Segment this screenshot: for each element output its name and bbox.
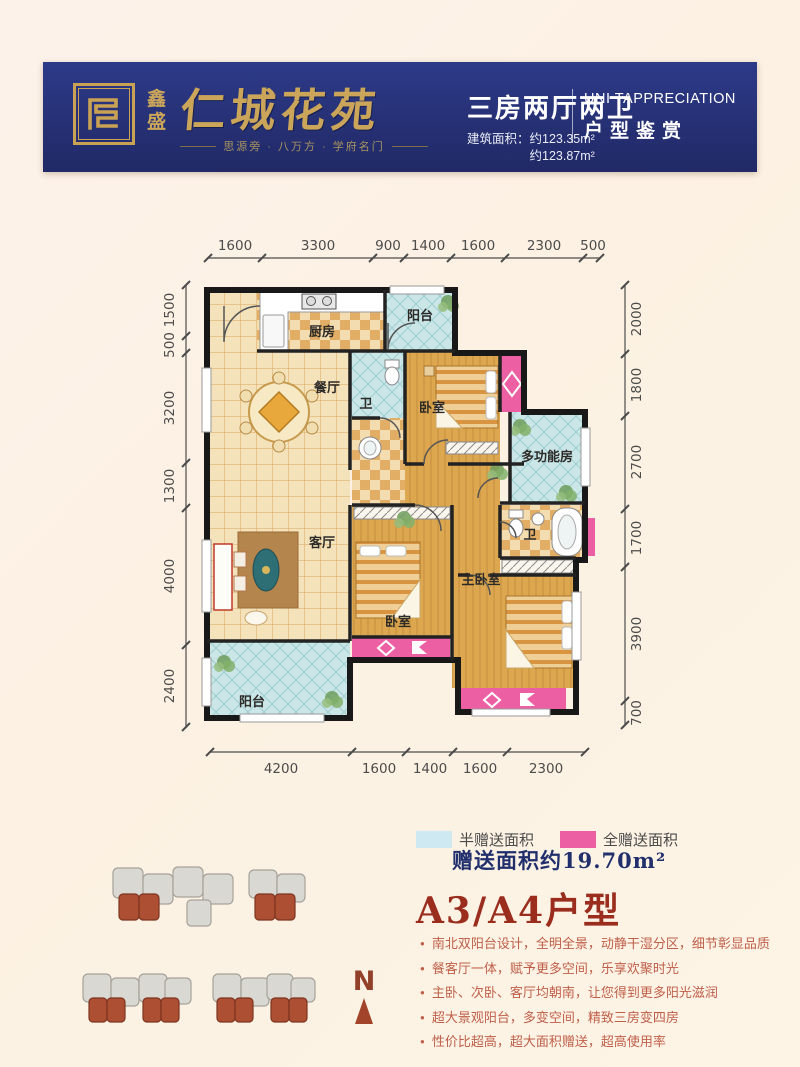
label-kitchen: 厨房 <box>309 324 335 340</box>
header-divider <box>572 89 573 143</box>
svg-text:1300: 1300 <box>162 469 178 503</box>
label-bedroom3: 卧室 <box>385 614 411 630</box>
feature-list: 南北双阳台设计，全明全景，动静干湿分区，细节彰显品质 餐客厅一体，赋予更多空间，… <box>420 932 770 1055</box>
svg-text:4000: 4000 <box>162 559 178 593</box>
unit-title: A3/A4户型 <box>416 882 621 934</box>
brand-name: 仁城花苑 <box>178 74 384 139</box>
svg-text:1400: 1400 <box>413 761 447 777</box>
svg-text:2300: 2300 <box>527 238 561 254</box>
label-multi: 多功能房 <box>521 449 573 465</box>
logo-glyph-icon <box>76 86 132 142</box>
sofa <box>214 544 232 610</box>
feature-item: 性价比超高，超大面积赠送，超高使用率 <box>420 1030 770 1055</box>
floor-plan: 厨房 阳台 餐厅 卫 卧室 多功能房 客厅 卧室 主卧室 卫 阳台 1600 3… <box>160 228 665 788</box>
label-north-balcony: 阳台 <box>407 308 433 324</box>
half-gift-swatch <box>416 831 452 848</box>
area-label: 建筑面积： <box>467 131 530 165</box>
svg-text:900: 900 <box>375 238 401 254</box>
appreciation-cn: 户型鉴赏 <box>584 116 736 143</box>
svg-text:2300: 2300 <box>529 761 563 777</box>
brand-tagline: 思源旁 · 八万方 · 学府名门 <box>173 138 435 154</box>
hall-floor <box>352 418 405 505</box>
svg-text:4200: 4200 <box>264 761 298 777</box>
feature-item: 餐客厅一体，赋予更多空间，乐享欢聚时光 <box>420 957 770 982</box>
appreciation-en: UNI TAPPRECIATION <box>584 91 736 107</box>
site-plan: N <box>55 852 400 1052</box>
svg-text:3200: 3200 <box>162 391 178 425</box>
svg-text:700: 700 <box>629 700 645 726</box>
label-bath2: 卫 <box>523 528 536 543</box>
appreciation-block: UNI TAPPRECIATION 户型鉴赏 <box>584 91 736 143</box>
north-compass-icon: N <box>353 966 376 1024</box>
svg-text:1600: 1600 <box>218 238 252 254</box>
bed-master <box>506 596 572 668</box>
brand-logo <box>73 83 135 145</box>
svg-text:1800: 1800 <box>629 368 645 402</box>
label-south-balcony: 阳台 <box>239 694 265 710</box>
feature-item: 超大景观阳台，多变空间，精致三房变四房 <box>420 1006 770 1031</box>
gift-area-line: 赠送面积约19.70m² <box>452 845 666 875</box>
label-bath1: 卫 <box>359 397 372 412</box>
svg-text:1600: 1600 <box>362 761 396 777</box>
svg-text:1600: 1600 <box>461 238 495 254</box>
svg-text:1400: 1400 <box>411 238 445 254</box>
compass-n-label: N <box>353 966 376 997</box>
svg-text:2700: 2700 <box>629 445 645 479</box>
feature-item: 主卧、次卧、客厅均朝南，让您得到更多阳光滋润 <box>420 981 770 1006</box>
site-buildings-gray <box>83 867 315 1006</box>
svg-text:500: 500 <box>162 332 178 358</box>
wardrobe-hatch-2 <box>502 560 576 573</box>
brand-small-name: 鑫 盛 <box>147 88 166 134</box>
corridor-floor <box>405 465 500 505</box>
master-gift-strip <box>458 688 566 712</box>
svg-text:500: 500 <box>580 238 606 254</box>
bedroom3-gift-strip <box>352 637 450 660</box>
area-value-2: 约123.87m² <box>530 148 595 165</box>
corridor-floor-2 <box>452 505 500 575</box>
svg-text:3900: 3900 <box>629 617 645 651</box>
floor-pillow <box>245 611 267 625</box>
svg-text:2000: 2000 <box>629 302 645 336</box>
feature-item: 南北双阳台设计，全明全景，动静干湿分区，细节彰显品质 <box>420 932 770 957</box>
label-dining: 餐厅 <box>313 380 340 396</box>
svg-text:1600: 1600 <box>463 761 497 777</box>
brand-banner: 鑫 盛 仁城花苑 思源旁 · 八万方 · 学府名门 三房两厅两卫 建筑面积： 约… <box>43 62 757 172</box>
wardrobe-hatch-3 <box>446 442 498 454</box>
label-bedroom2: 卧室 <box>419 400 445 416</box>
svg-text:1700: 1700 <box>629 521 645 555</box>
bed-bedroom3 <box>356 542 420 618</box>
svg-text:1500: 1500 <box>162 293 178 327</box>
svg-text:2400: 2400 <box>162 669 178 703</box>
label-master: 主卧室 <box>461 572 500 588</box>
svg-text:3300: 3300 <box>301 238 335 254</box>
label-living: 客厅 <box>309 535 335 551</box>
fridge <box>263 315 284 347</box>
